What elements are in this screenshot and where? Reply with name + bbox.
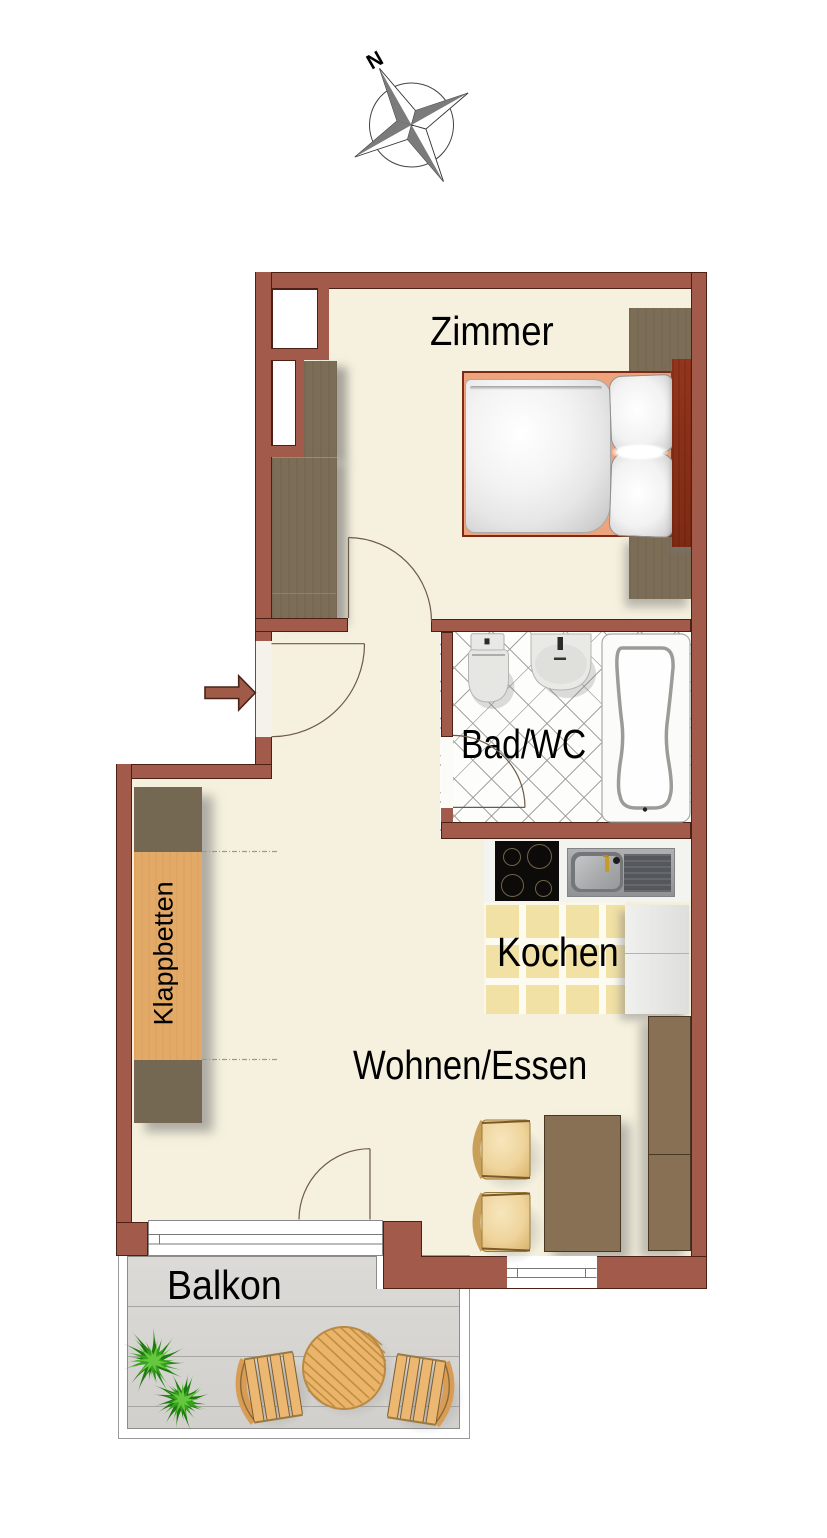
svg-text:N: N <box>363 47 388 74</box>
